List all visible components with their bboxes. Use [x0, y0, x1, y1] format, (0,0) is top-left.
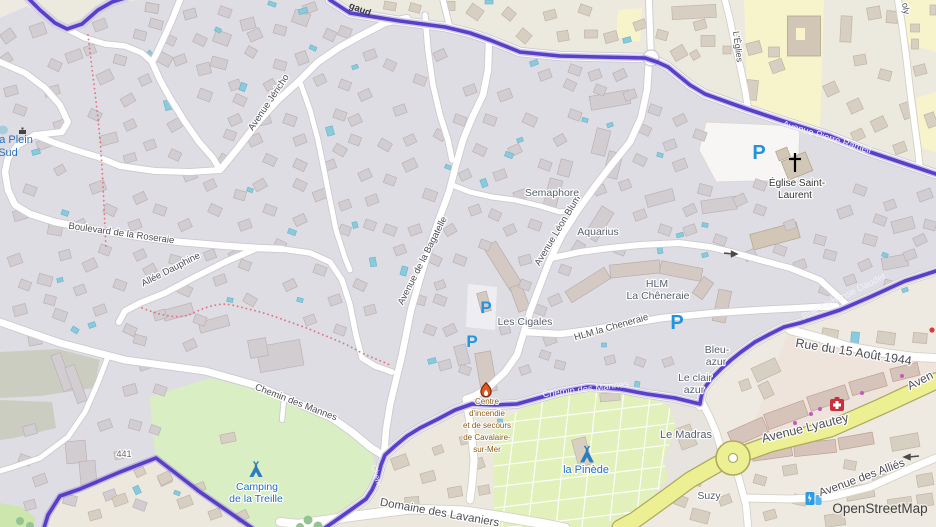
- svg-text:Les Cigales: Les Cigales: [498, 316, 553, 328]
- svg-text:Centre: Centre: [475, 397, 500, 406]
- svg-text:OpenStreetMap: OpenStreetMap: [832, 501, 927, 516]
- svg-text:et de secours: et de secours: [463, 421, 511, 430]
- svg-text:P: P: [670, 312, 683, 334]
- svg-text:Sud: Sud: [0, 147, 18, 159]
- svg-text:d'incendie: d'incendie: [469, 409, 505, 418]
- svg-text:441: 441: [116, 449, 131, 459]
- svg-text:Le clair: Le clair: [678, 372, 712, 384]
- svg-text:La Chêneraie: La Chêneraie: [626, 290, 689, 302]
- svg-text:P: P: [480, 298, 491, 317]
- svg-text:Suzy: Suzy: [697, 490, 721, 502]
- svg-text:a Plein: a Plein: [0, 134, 33, 146]
- svg-text:azur: azur: [706, 356, 727, 368]
- svg-text:Église Saint-: Église Saint-: [769, 176, 825, 189]
- svg-text:oly: oly: [900, 2, 912, 16]
- svg-text:de la Treille: de la Treille: [229, 493, 283, 505]
- svg-text:Bleu-: Bleu-: [705, 344, 730, 356]
- svg-text:Le Madras: Le Madras: [660, 429, 712, 441]
- svg-text:P: P: [466, 332, 477, 351]
- svg-text:la Pinède: la Pinède: [563, 464, 609, 476]
- svg-text:Camping: Camping: [236, 481, 278, 493]
- svg-text:Laurent: Laurent: [778, 190, 812, 201]
- svg-text:HLM: HLM: [646, 278, 668, 290]
- svg-text:Semaphore: Semaphore: [525, 187, 579, 199]
- svg-text:azur: azur: [684, 384, 705, 396]
- svg-text:de Cavalaire-: de Cavalaire-: [463, 433, 511, 442]
- svg-text:sur-Mer: sur-Mer: [473, 445, 501, 454]
- svg-text:P: P: [752, 142, 765, 164]
- svg-text:Aquarius: Aquarius: [577, 226, 618, 238]
